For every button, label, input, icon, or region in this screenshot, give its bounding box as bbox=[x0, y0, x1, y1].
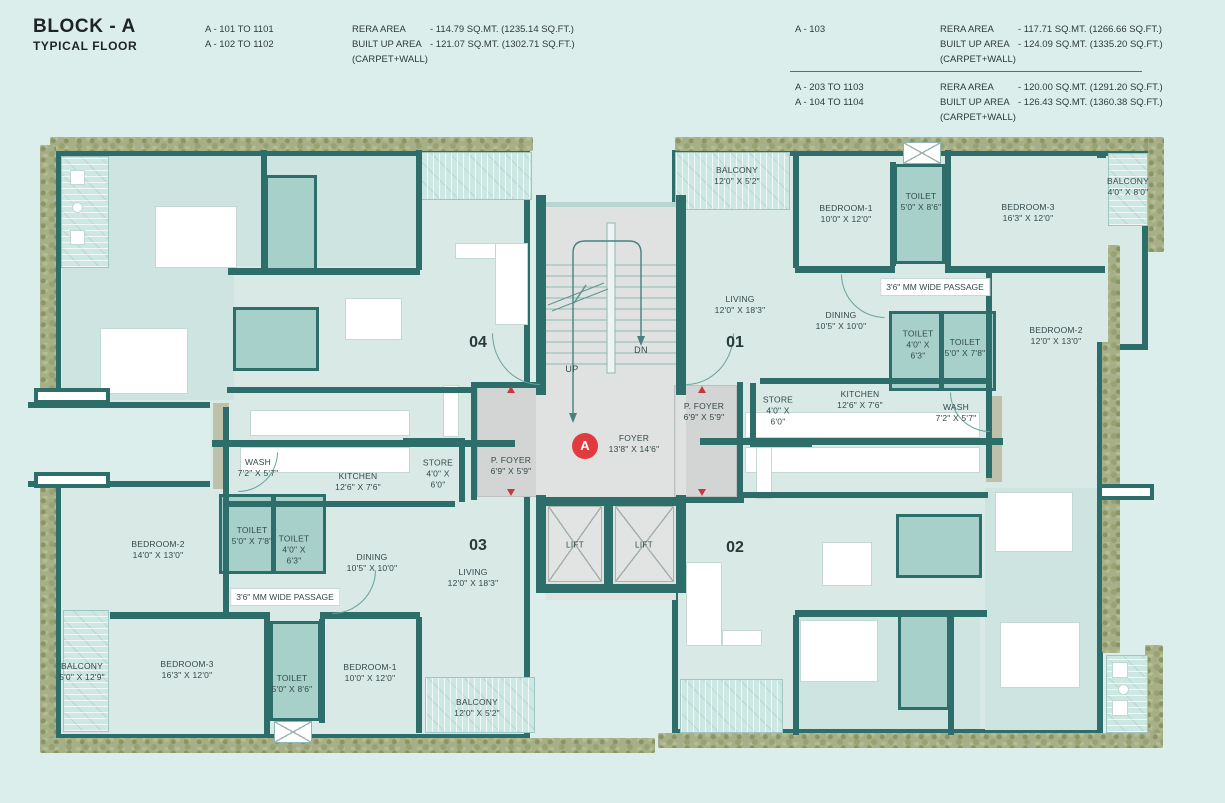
unit-range-left: A - 101 TO 1101 A - 102 TO 1102 bbox=[205, 22, 274, 52]
wall-segment bbox=[760, 378, 988, 384]
room-label-bedroom1: BEDROOM-110'0" X 12'0" bbox=[343, 662, 396, 684]
sofa-furniture bbox=[686, 562, 722, 646]
block-a-badge: A bbox=[572, 433, 598, 459]
bed-furniture bbox=[800, 620, 878, 682]
area-row: (CARPET+WALL) bbox=[352, 52, 575, 67]
toilet-area bbox=[896, 514, 982, 578]
wall-segment bbox=[795, 610, 987, 617]
room-label-store: STORE4'0" X 6'0" bbox=[760, 394, 796, 427]
room-label-balcony: BALCONY5'0" X 12'9" bbox=[59, 661, 105, 683]
unit-number-02: 02 bbox=[726, 539, 744, 557]
room-label-bedroom3: BEDROOM-316'3" X 12'0" bbox=[1001, 202, 1054, 224]
kitchen-counter bbox=[250, 410, 410, 436]
wall-segment bbox=[319, 619, 325, 723]
room-label-bedroom1: BEDROOM-110'0" X 12'0" bbox=[819, 203, 872, 225]
wall-segment bbox=[228, 268, 420, 275]
area-table-right-bottom: RERA AREA- 120.00 SQ.MT. (1291.20 SQ.FT.… bbox=[940, 80, 1163, 125]
room-label-toilet: TOILET4'0" X 6'3" bbox=[900, 328, 936, 361]
sofa-furniture bbox=[455, 243, 500, 259]
room-label-pfoyer-right: P. FOYER6'9" X 5'9" bbox=[684, 401, 725, 423]
room-label-bedroom3: BEDROOM-316'3" X 12'0" bbox=[160, 659, 213, 681]
wall-segment bbox=[939, 311, 944, 391]
wall-segment bbox=[793, 152, 799, 268]
wall-tab bbox=[1098, 484, 1154, 500]
area-row: RERA AREA- 114.79 SQ.MT. (1235.14 SQ.FT.… bbox=[352, 22, 575, 37]
wall-segment bbox=[416, 150, 422, 270]
sofa-furniture bbox=[722, 630, 762, 646]
passage-label: 3'6" MM WIDE PASSAGE bbox=[230, 588, 340, 606]
balcony-area bbox=[680, 679, 783, 733]
room-label-living: LIVING12'0" X 18'3" bbox=[715, 294, 766, 316]
room-label-balcony: BALCONY12'0" X 5'2" bbox=[454, 697, 500, 719]
room-label-toilet: TOILET5'0" X 8'6" bbox=[272, 673, 313, 695]
area-table-left: RERA AREA- 114.79 SQ.MT. (1235.14 SQ.FT.… bbox=[352, 22, 575, 67]
wall-segment bbox=[261, 150, 267, 275]
sofa-furniture bbox=[495, 243, 528, 325]
room-label-toilet: TOILET4'0" X 6'3" bbox=[276, 533, 312, 566]
wall-segment bbox=[793, 615, 799, 735]
room-label-kitchen: KITCHEN12'6" X 7'6" bbox=[837, 389, 883, 411]
wall-segment bbox=[227, 501, 455, 507]
wall-segment bbox=[795, 266, 895, 273]
wall-segment bbox=[459, 442, 465, 502]
wall-segment bbox=[948, 266, 1105, 273]
unit-range-line: A - 102 TO 1102 bbox=[205, 37, 274, 52]
area-row: BUILT UP AREA- 121.07 SQ.MT. (1302.71 SQ… bbox=[352, 37, 575, 52]
wall-segment bbox=[676, 497, 686, 593]
greenery-strip bbox=[50, 137, 533, 151]
bed-furniture bbox=[1000, 622, 1080, 688]
room-label-kitchen: KITCHEN12'6" X 7'6" bbox=[335, 471, 381, 493]
floor-plan-page: { "header": { "title": "BLOCK - A", "sub… bbox=[0, 0, 1225, 803]
bed-furniture bbox=[155, 206, 237, 268]
area-table-right-top: RERA AREA- 117.71 SQ.MT. (1266.66 SQ.FT.… bbox=[940, 22, 1163, 67]
room-label-foyer: FOYER13'8" X 14'6" bbox=[609, 433, 660, 455]
shaft-box bbox=[274, 721, 312, 743]
area-row: (CARPET+WALL) bbox=[940, 110, 1163, 125]
wall-segment bbox=[536, 584, 686, 593]
bed-furniture bbox=[995, 492, 1073, 552]
wall-segment bbox=[212, 440, 515, 447]
wall-segment bbox=[110, 612, 267, 619]
room-label-bedroom2: BEDROOM-214'0" X 13'0" bbox=[131, 539, 184, 561]
room-label-bedroom2: BEDROOM-212'0" X 13'0" bbox=[1029, 325, 1082, 347]
toilet-area bbox=[898, 612, 950, 710]
room-label-store: STORE4'0" X 6'0" bbox=[420, 457, 456, 490]
toilet-area bbox=[265, 175, 317, 273]
chair-furniture bbox=[1112, 662, 1128, 678]
wall-segment bbox=[403, 438, 465, 444]
chair-furniture bbox=[70, 170, 85, 185]
room-label-toilet: TOILET5'0" X 7'8" bbox=[945, 337, 986, 359]
wall-segment bbox=[536, 497, 546, 593]
unit-number-03: 03 bbox=[469, 537, 487, 555]
room-label-living: LIVING12'0" X 18'3" bbox=[448, 567, 499, 589]
greenery-strip bbox=[1148, 137, 1164, 252]
wall-segment bbox=[750, 441, 812, 447]
dining-table bbox=[822, 542, 872, 586]
plan-title-block: BLOCK - A TYPICAL FLOOR bbox=[33, 16, 137, 53]
wall-segment bbox=[416, 617, 422, 733]
room-label-balcony: BALCONY12'0" X 5'2" bbox=[714, 165, 760, 187]
unit-range-line: A - 203 TO 1103 bbox=[795, 80, 864, 95]
toilet-area bbox=[233, 307, 319, 371]
lift-label: LIFT bbox=[566, 541, 584, 550]
balcony-area bbox=[61, 156, 109, 268]
wall-segment bbox=[986, 273, 992, 478]
balcony-area bbox=[420, 152, 532, 200]
wall-segment bbox=[700, 438, 1003, 445]
lift-label: LIFT bbox=[635, 541, 653, 550]
toilet-area bbox=[270, 621, 321, 721]
wall-segment bbox=[604, 503, 613, 588]
wall-segment bbox=[740, 492, 988, 498]
wall-segment bbox=[223, 407, 229, 612]
stairs-up-label: UP bbox=[565, 364, 578, 374]
entry-arrow-icon bbox=[698, 489, 706, 496]
bed-furniture bbox=[100, 328, 188, 394]
wall-segment bbox=[264, 612, 270, 735]
entry-arrow-icon bbox=[698, 386, 706, 393]
entry-arrow-icon bbox=[507, 489, 515, 496]
unit-number-01: 01 bbox=[726, 334, 744, 352]
wall-segment bbox=[471, 382, 477, 500]
floor-subtitle: TYPICAL FLOOR bbox=[33, 39, 137, 53]
unit-range-right-bottom: A - 203 TO 1103 A - 104 TO 1104 bbox=[795, 80, 864, 110]
toilet-area bbox=[894, 164, 945, 264]
room-label-dining: DINING10'5" X 10'0" bbox=[347, 552, 398, 574]
area-row: RERA AREA- 120.00 SQ.MT. (1291.20 SQ.FT.… bbox=[940, 80, 1163, 95]
wall-segment bbox=[948, 610, 954, 735]
room-label-toilet: TOILET5'0" X 7'8" bbox=[232, 525, 273, 547]
shaft-box bbox=[903, 142, 941, 164]
room-label-toilet: TOILET5'0" X 8'6" bbox=[901, 191, 942, 213]
wall-segment bbox=[890, 162, 896, 266]
greenery-strip bbox=[658, 733, 1163, 748]
wall-tab bbox=[34, 472, 110, 488]
area-row: BUILT UP AREA- 126.43 SQ.MT. (1360.38 SQ… bbox=[940, 95, 1163, 110]
chair-furniture bbox=[1112, 700, 1128, 716]
core-opening bbox=[536, 395, 546, 495]
unit-number-04: 04 bbox=[469, 334, 487, 352]
chair-furniture bbox=[70, 230, 85, 245]
passage-label: 3'6" MM WIDE PASSAGE bbox=[880, 278, 990, 296]
dining-table bbox=[345, 298, 402, 340]
wall-segment bbox=[227, 387, 475, 393]
table-furniture bbox=[72, 202, 83, 213]
unit-range-line: A - 104 TO 1104 bbox=[795, 95, 864, 110]
room-label-pfoyer-left: P. FOYER6'9" X 5'9" bbox=[491, 455, 532, 477]
table-furniture bbox=[1118, 684, 1129, 695]
room-label-balcony: BALCONY4'0" X 8'0" bbox=[1107, 176, 1149, 198]
area-row: BUILT UP AREA- 124.09 SQ.MT. (1335.20 SQ… bbox=[940, 37, 1163, 52]
unit-range-line: A - 103 bbox=[795, 22, 825, 37]
greenery-strip bbox=[40, 738, 655, 753]
room-label-wash: WASH7'2" X 5'7" bbox=[936, 402, 977, 424]
area-row: (CARPET+WALL) bbox=[940, 52, 1163, 67]
unit-range-right-top: A - 103 bbox=[795, 22, 825, 37]
entry-arrow-icon bbox=[507, 386, 515, 393]
block-title: BLOCK - A bbox=[33, 16, 137, 38]
wall-tab bbox=[34, 388, 110, 404]
wall-segment bbox=[737, 382, 743, 500]
stairs-down-label: DN bbox=[634, 345, 648, 355]
room-label-dining: DINING10'5" X 10'0" bbox=[816, 310, 867, 332]
wall-segment bbox=[945, 150, 951, 273]
kitchen-counter bbox=[745, 447, 980, 473]
wall-segment bbox=[750, 383, 756, 443]
header-divider bbox=[790, 71, 1142, 72]
area-row: RERA AREA- 117.71 SQ.MT. (1266.66 SQ.FT.… bbox=[940, 22, 1163, 37]
unit-range-line: A - 101 TO 1101 bbox=[205, 22, 274, 37]
room-label-wash: WASH7'2" X 5'7" bbox=[238, 457, 279, 479]
